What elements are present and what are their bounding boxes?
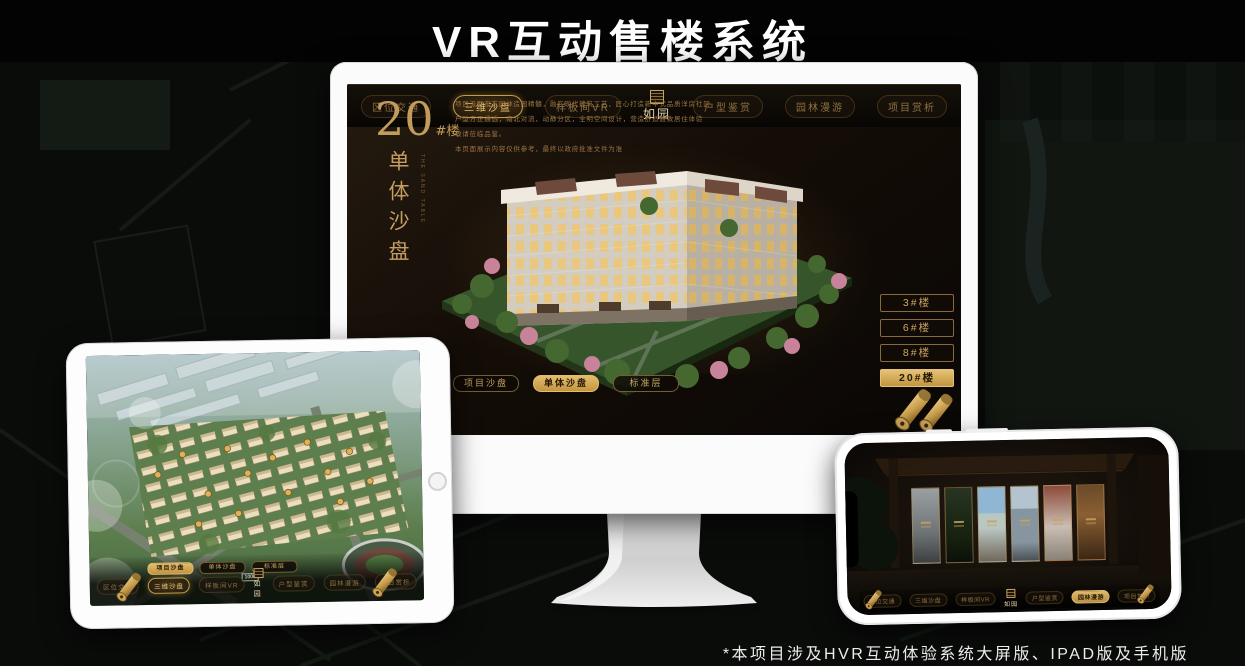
- panel-caption: [1086, 518, 1096, 520]
- tablet-brand-logo-text: 如园: [253, 579, 263, 599]
- block-number: 20#楼: [375, 96, 459, 142]
- floor-button-6[interactable]: 6#楼: [880, 319, 954, 337]
- tab-standard-floor[interactable]: 标准层: [613, 375, 679, 392]
- intro-line: 本页面展示内容仅供参考，最终以政府批准文件为准: [455, 143, 715, 158]
- block-number-value: 20: [375, 92, 434, 146]
- tab-project-sandtable[interactable]: 项目沙盘: [453, 375, 519, 392]
- tablet-nav-item-garden-tour[interactable]: 园林漫游: [323, 574, 365, 591]
- scroll-handle[interactable]: [1135, 581, 1156, 607]
- power-button: [926, 429, 952, 434]
- building-diorama-illustration: [387, 136, 907, 402]
- footnote: *本项目涉及HVR互动体验系统大屏版、IPAD版及手机版: [723, 640, 1189, 664]
- scroll-handle[interactable]: [113, 569, 144, 606]
- gallery-panel-row: [911, 484, 1106, 564]
- block-title-english: THE SAND TABLE: [419, 154, 425, 224]
- nav-item-garden-tour[interactable]: 园林漫游: [785, 95, 855, 118]
- home-button[interactable]: [428, 472, 447, 491]
- tab-single-sandtable[interactable]: 单体沙盘: [533, 375, 599, 392]
- panel-caption: [987, 520, 997, 522]
- tablet-navbar: 区位交通 三维沙盘 样板间VR 如园 户型鉴赏 园林漫游 项目赏析: [120, 566, 394, 602]
- panel-caption: [954, 520, 964, 522]
- gallery-panel[interactable]: [1010, 485, 1040, 562]
- intro-line: 敬请莅临品鉴。: [455, 128, 715, 143]
- panel-caption: [921, 521, 931, 523]
- nav-item-project-gallery[interactable]: 项目赏析: [877, 95, 947, 118]
- phone-screen: 区位交通 三维沙盘 样板间VR 如园 户型鉴赏 园林漫游 项目赏析: [844, 437, 1172, 616]
- gallery-panel[interactable]: [1076, 484, 1106, 561]
- scroll-handle[interactable]: [863, 587, 884, 613]
- tablet-nav-item-showroom-vr[interactable]: 样板间VR: [199, 576, 245, 593]
- gallery-panel[interactable]: [944, 487, 974, 564]
- phone-nav-item-showroom-vr[interactable]: 样板间VR: [955, 592, 996, 606]
- gallery-panel[interactable]: [1043, 485, 1073, 562]
- sub-tab-group: 项目沙盘 单体沙盘 标准层: [453, 375, 679, 392]
- phone-brand-logo-text: 如园: [1004, 598, 1018, 607]
- intro-line: 项目汲取东方园林造园精髓，融汇现代建筑工艺，匠心打造新中式品质洋房社区: [455, 98, 715, 113]
- tablet-nav-item-3d-sandtable[interactable]: 三维沙盘: [148, 577, 190, 594]
- monitor-stand: [529, 513, 779, 613]
- tablet-screen: 项目沙盘 单体沙盘 标准层 1000 区位交通 三维沙盘 样板间VR 如园 户型…: [86, 350, 424, 606]
- phone-brand-logo: 如园: [1004, 588, 1018, 607]
- panel-caption: [1053, 518, 1063, 520]
- gallery-panel[interactable]: [911, 487, 941, 564]
- scroll-handle[interactable]: [369, 565, 400, 602]
- gallery-panel[interactable]: [977, 486, 1007, 563]
- floor-button-8[interactable]: 8#楼: [880, 344, 954, 362]
- seal-icon: [1006, 588, 1015, 597]
- phone-nav-item-floorplans[interactable]: 户型鉴赏: [1026, 590, 1064, 604]
- block-title-vertical: 单体沙盘: [383, 150, 413, 270]
- scroll-handle[interactable]: [915, 389, 957, 435]
- phone-device: 区位交通 三维沙盘 样板间VR 如园 户型鉴赏 园林漫游 项目赏析: [834, 426, 1182, 625]
- phone-notch: [844, 491, 859, 567]
- tablet-brand-logo: 如园: [253, 568, 264, 599]
- stage: VR互动售楼系统: [0, 0, 1245, 666]
- page-title: VR互动售楼系统: [0, 6, 1245, 70]
- tablet-nav-item-floorplans[interactable]: 户型鉴赏: [272, 575, 314, 592]
- floor-button-group: 3#楼 6#楼 8#楼 20#楼: [880, 294, 954, 387]
- intro-line: 户型方正通透，南北对流，动静分区，全明空间设计，营造舒适雅致居住体验: [455, 113, 715, 128]
- seal-icon: [253, 568, 263, 578]
- volume-button: [966, 428, 1008, 433]
- phone-nav-item-3d-sandtable[interactable]: 三维沙盘: [909, 593, 947, 607]
- phone-nav-item-garden-tour[interactable]: 园林漫游: [1072, 589, 1110, 603]
- tablet-device: 项目沙盘 单体沙盘 标准层 1000 区位交通 三维沙盘 样板间VR 如园 户型…: [66, 337, 455, 630]
- intro-paragraph: 项目汲取东方园林造园精髓，融汇现代建筑工艺，匠心打造新中式品质洋房社区 户型方正…: [455, 98, 715, 158]
- panel-caption: [1020, 519, 1030, 521]
- floor-button-3[interactable]: 3#楼: [880, 294, 954, 312]
